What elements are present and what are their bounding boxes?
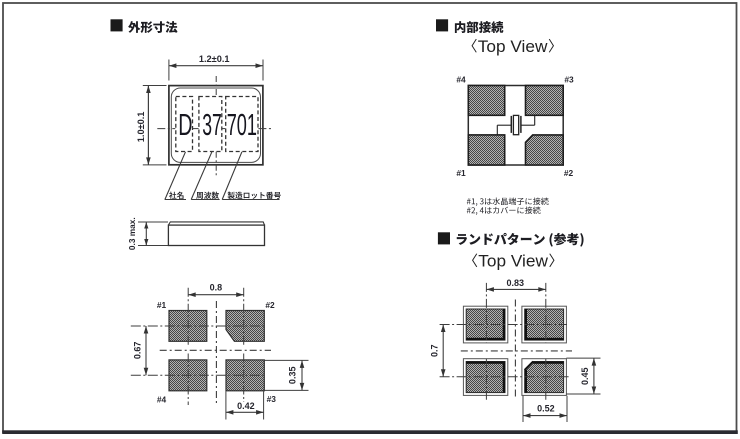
svg-text:0.42: 0.42 bbox=[237, 401, 255, 411]
svg-text:#2: #2 bbox=[265, 300, 275, 310]
svg-text:0.8: 0.8 bbox=[210, 283, 223, 293]
svg-text:#1: #1 bbox=[157, 300, 167, 310]
svg-text:0.83: 0.83 bbox=[507, 278, 525, 288]
svg-text:0.7: 0.7 bbox=[430, 344, 440, 357]
svg-text:0.35: 0.35 bbox=[288, 367, 298, 385]
svg-text:#1: #1 bbox=[456, 168, 466, 178]
svg-text:1.0±0.1: 1.0±0.1 bbox=[136, 112, 146, 143]
svg-text:701: 701 bbox=[227, 107, 257, 142]
svg-text:#3: #3 bbox=[564, 75, 574, 85]
svg-text:#4: #4 bbox=[157, 394, 167, 404]
svg-text:1.2±0.1: 1.2±0.1 bbox=[199, 54, 230, 64]
svg-text:#3: #3 bbox=[267, 394, 277, 404]
svg-text:0.45: 0.45 bbox=[580, 367, 590, 385]
svg-text:D: D bbox=[178, 107, 192, 142]
svg-text:Top View: Top View bbox=[478, 38, 548, 56]
svg-text:0.67: 0.67 bbox=[132, 342, 142, 360]
svg-text:0.52: 0.52 bbox=[537, 404, 555, 414]
svg-text:37: 37 bbox=[202, 107, 222, 142]
svg-text:#4: #4 bbox=[456, 75, 466, 85]
svg-text:0.3 max.: 0.3 max. bbox=[127, 217, 137, 250]
svg-text:#2: #2 bbox=[564, 168, 574, 178]
svg-text:Top View: Top View bbox=[478, 252, 548, 270]
